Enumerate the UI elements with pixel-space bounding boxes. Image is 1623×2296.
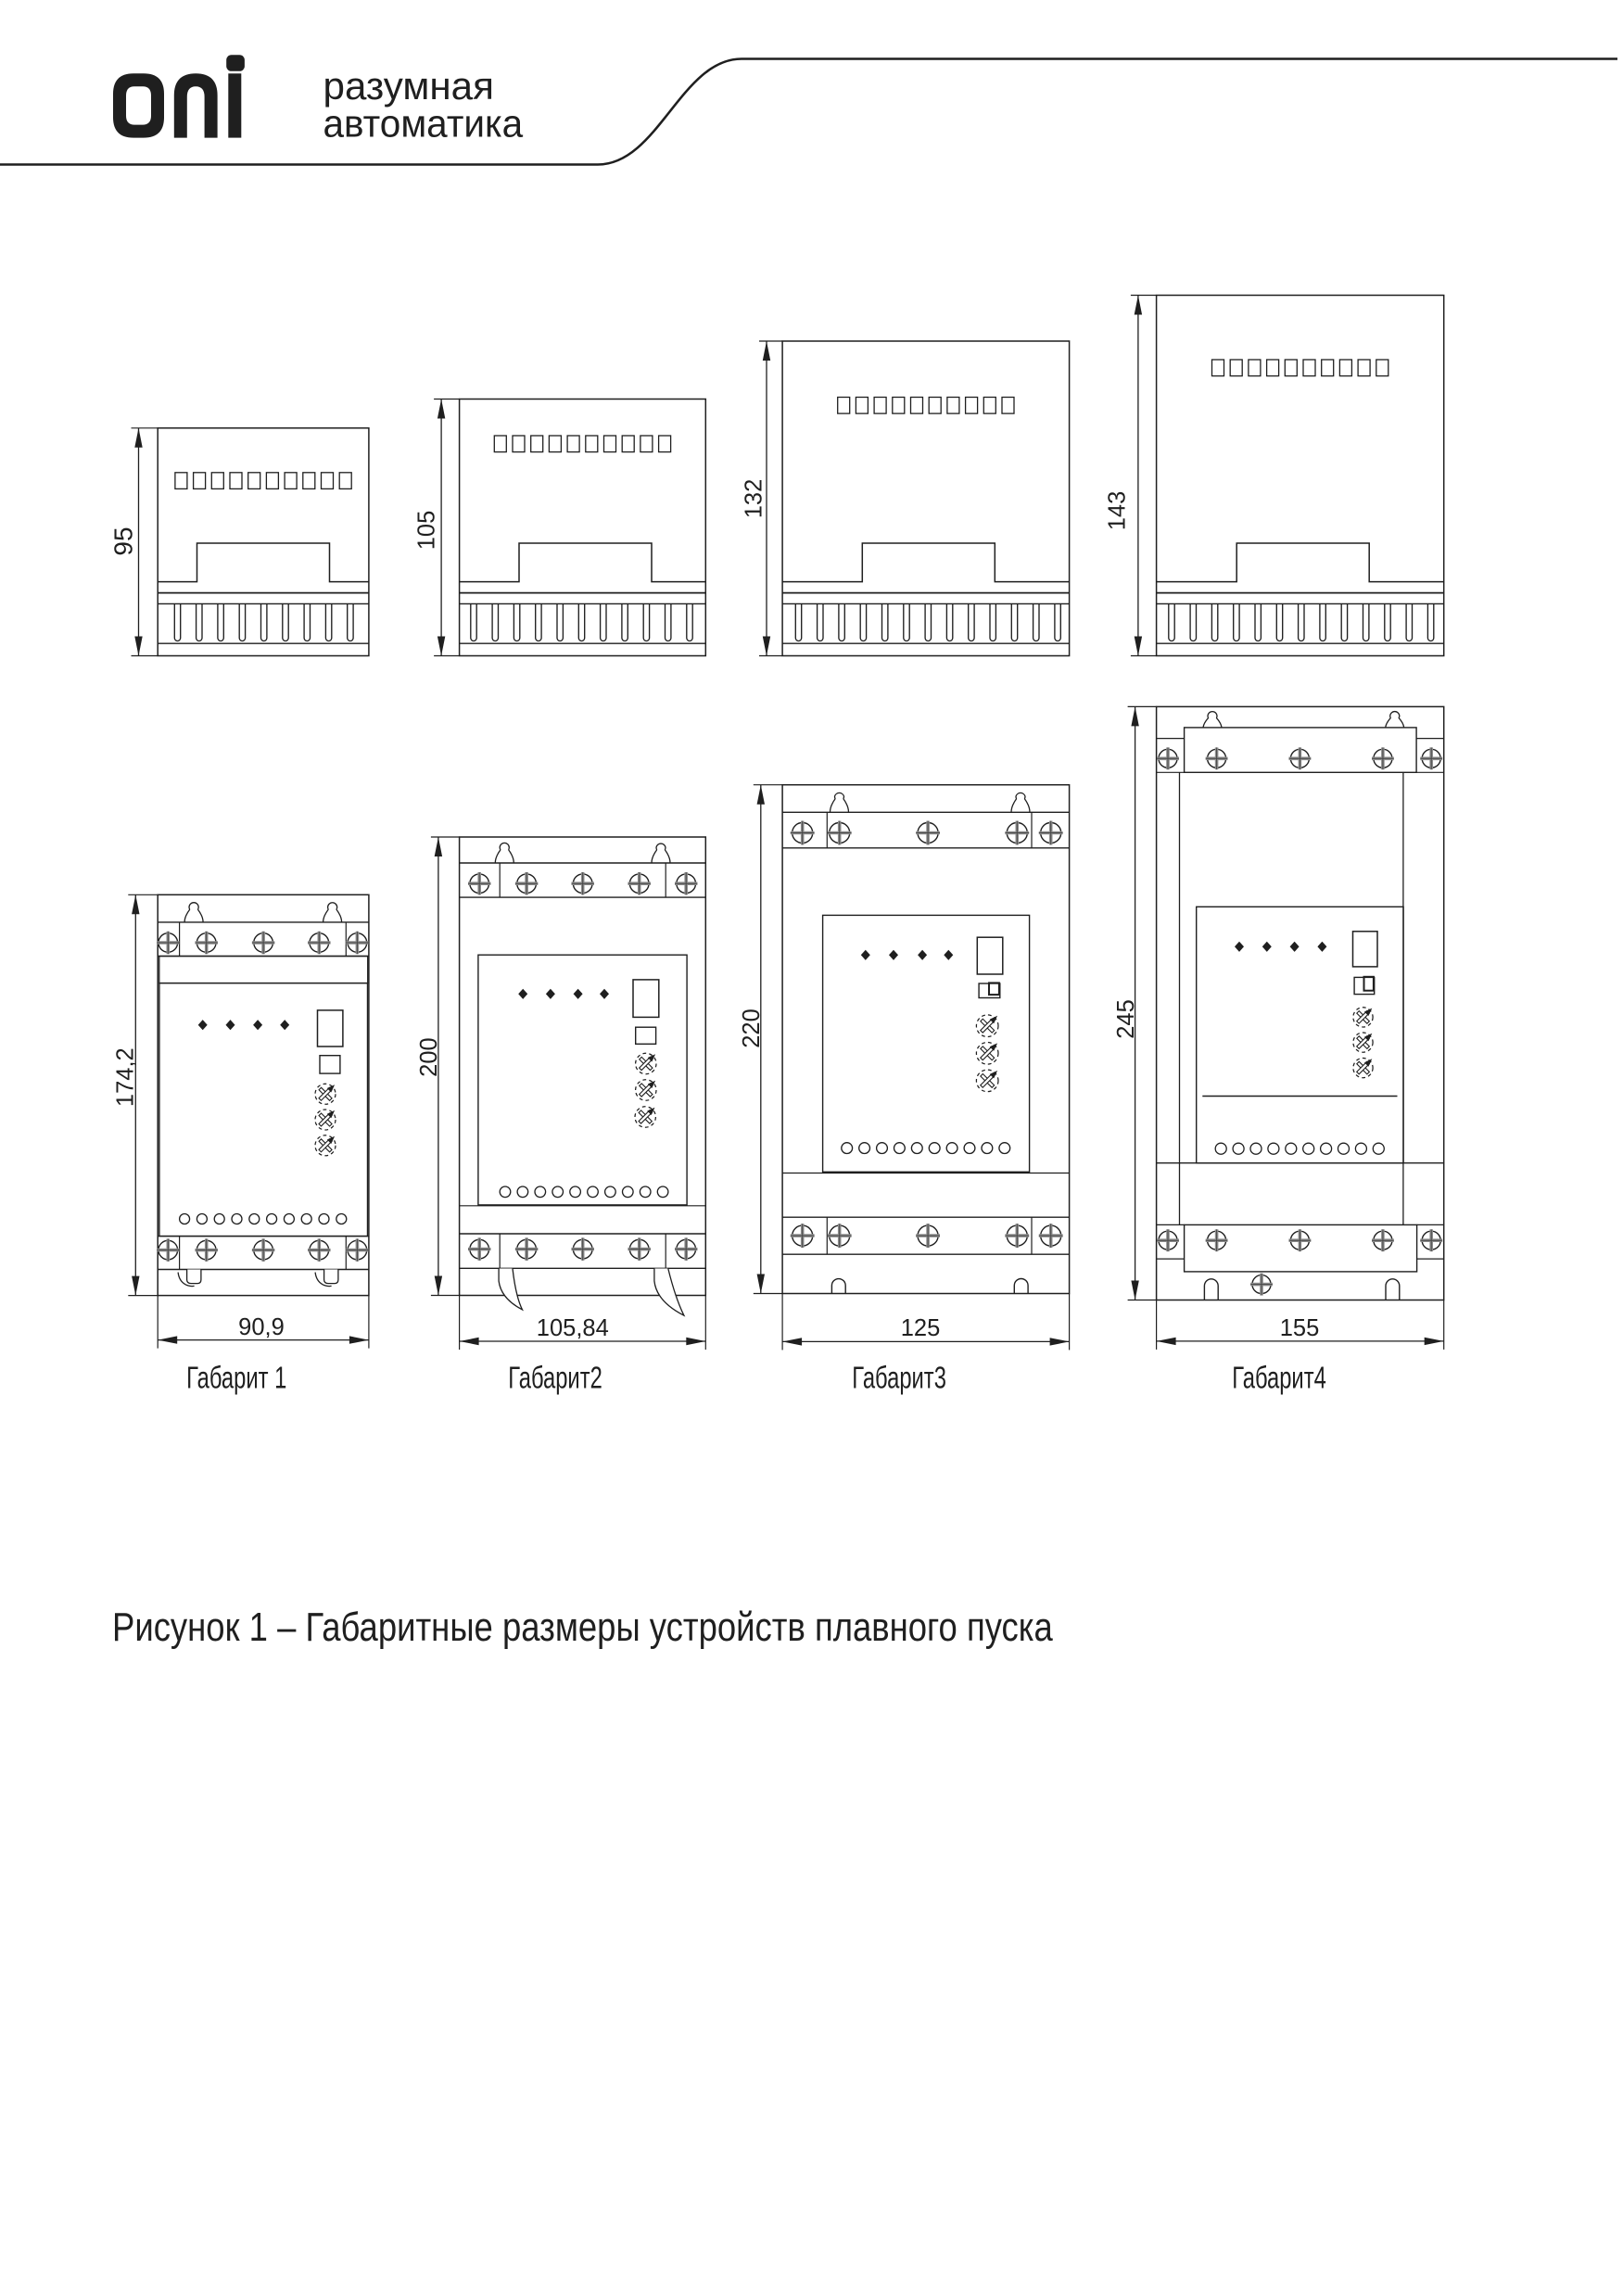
svg-text:Габарит3: Габарит3 xyxy=(852,1362,946,1396)
svg-text:220: 220 xyxy=(739,1008,765,1048)
svg-text:245: 245 xyxy=(1113,999,1139,1039)
svg-text:Габарит2: Габарит2 xyxy=(508,1362,602,1396)
svg-text:155: 155 xyxy=(1280,1315,1320,1341)
svg-text:132: 132 xyxy=(741,479,767,519)
svg-text:105,84: 105,84 xyxy=(537,1315,609,1341)
svg-text:105: 105 xyxy=(414,511,440,551)
svg-text:90,9: 90,9 xyxy=(238,1314,285,1340)
svg-text:Габарит 1: Габарит 1 xyxy=(186,1362,286,1396)
svg-text:разумная: разумная xyxy=(323,64,494,108)
svg-text:Габарит4: Габарит4 xyxy=(1232,1362,1326,1396)
svg-text:95: 95 xyxy=(109,526,138,555)
svg-text:125: 125 xyxy=(901,1315,941,1341)
svg-text:Рисунок 1 – Габаритные размеры: Рисунок 1 – Габаритные размеры устройств… xyxy=(112,1604,1053,1650)
svg-text:174,2: 174,2 xyxy=(112,1047,138,1107)
svg-text:автоматика: автоматика xyxy=(323,102,524,146)
svg-text:200: 200 xyxy=(416,1037,442,1077)
svg-text:143: 143 xyxy=(1104,491,1130,531)
